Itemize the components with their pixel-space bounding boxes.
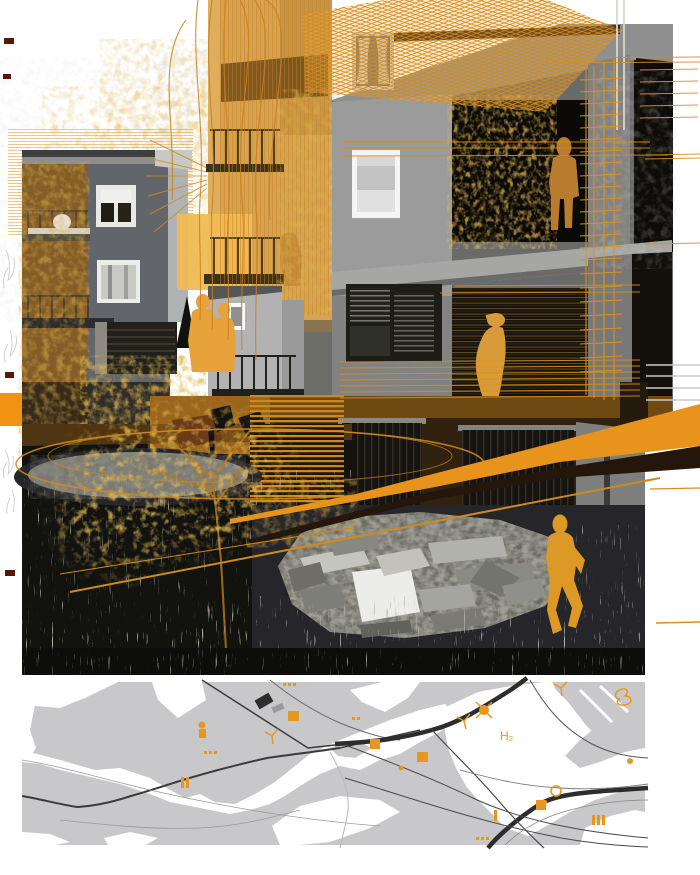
- svg-text:H₂: H₂: [500, 729, 514, 743]
